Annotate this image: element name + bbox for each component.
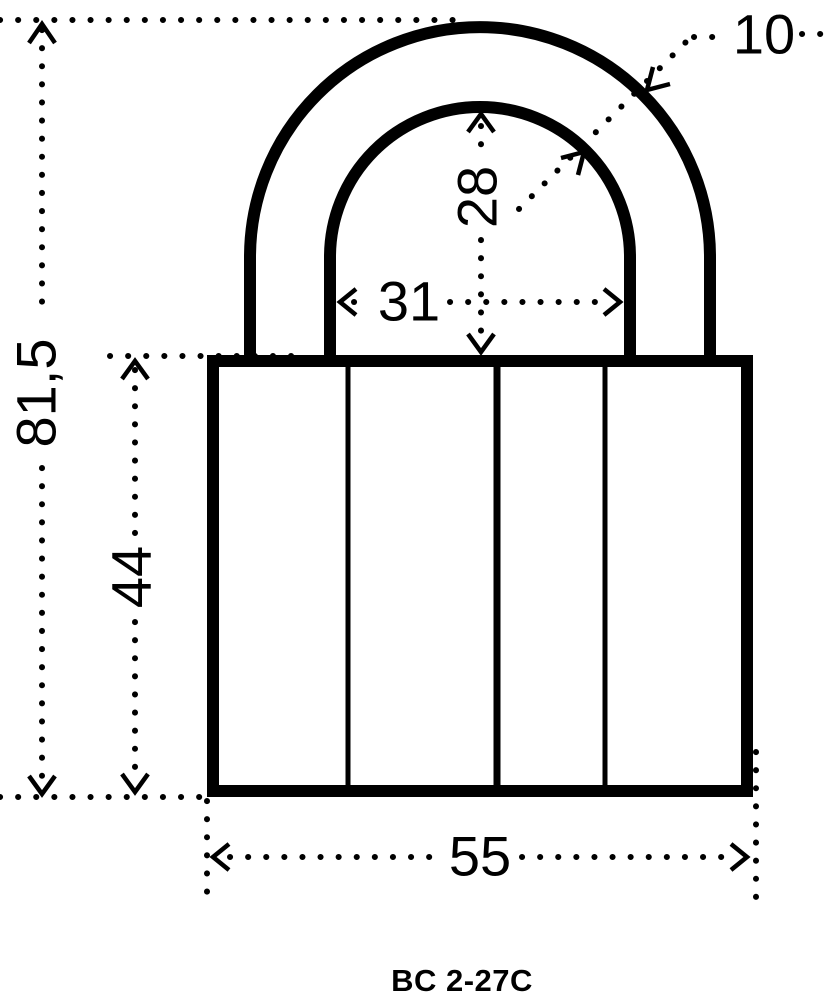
dim-body-height-label: 44: [100, 546, 163, 608]
drawing-canvas: 81,5 44 28 31 10 55: [0, 0, 832, 1000]
arrow-right-icon: [604, 289, 620, 315]
dim-total-height-label: 81,5: [5, 339, 68, 448]
dim-shackle-inner-height: 28: [446, 114, 509, 352]
dim-body-width-label: 55: [449, 825, 511, 888]
arrow-left-icon: [213, 844, 229, 870]
arrow-up-right-icon: [561, 152, 584, 175]
body-outline: [213, 361, 747, 791]
padlock-dimension-drawing: 81,5 44 28 31 10 55: [0, 0, 832, 1000]
arrow-up-icon: [29, 24, 55, 43]
dim-body-height: 44: [100, 361, 163, 792]
dim-body-width: 55: [213, 825, 747, 888]
dim-shackle-inner-width-label: 31: [378, 270, 440, 333]
arrow-down-icon: [122, 774, 148, 792]
dim-shackle-diameter-label: 10: [733, 3, 795, 66]
dim-total-height: 81,5: [5, 24, 68, 794]
dim-shackle-inner-height-label: 28: [446, 166, 509, 228]
dim-shackle-diameter: 10: [519, 3, 832, 209]
model-label: BC 2-27C: [391, 963, 533, 998]
arrow-right-icon: [731, 844, 747, 870]
arrow-down-icon: [468, 334, 494, 352]
